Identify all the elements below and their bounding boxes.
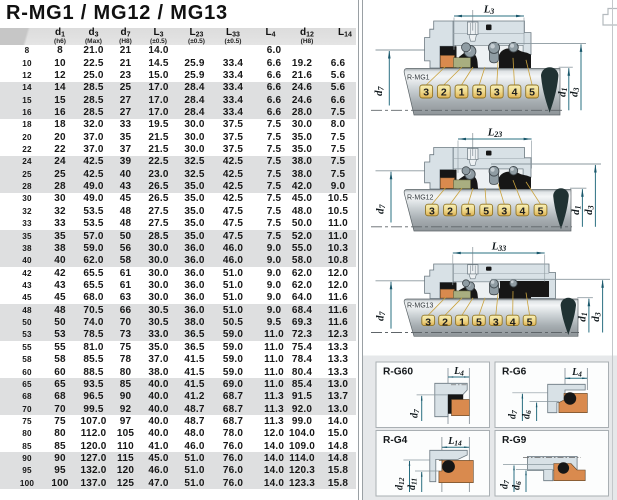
svg-text:4: 4 bbox=[512, 86, 518, 98]
svg-text:d7: d7 bbox=[508, 410, 519, 419]
svg-text:5: 5 bbox=[527, 317, 533, 329]
svg-text:3: 3 bbox=[429, 206, 435, 218]
svg-text:5: 5 bbox=[538, 206, 544, 218]
svg-text:L14: L14 bbox=[447, 436, 462, 447]
svg-text:d6: d6 bbox=[512, 481, 523, 490]
svg-text:d7: d7 bbox=[410, 409, 421, 418]
svg-text:3: 3 bbox=[494, 86, 500, 98]
svg-text:3: 3 bbox=[501, 206, 507, 218]
svg-text:R-G6: R-G6 bbox=[502, 367, 527, 378]
svg-text:3: 3 bbox=[423, 86, 429, 98]
svg-text:d11: d11 bbox=[407, 478, 418, 490]
svg-text:R-MG13: R-MG13 bbox=[407, 303, 434, 310]
svg-text:1: 1 bbox=[459, 86, 465, 98]
svg-text:R-MG1: R-MG1 bbox=[407, 75, 430, 82]
svg-text:L4: L4 bbox=[571, 367, 582, 378]
svg-text:L4: L4 bbox=[453, 366, 464, 377]
svg-text:4: 4 bbox=[519, 206, 525, 218]
svg-text:d12: d12 bbox=[395, 477, 406, 490]
svg-text:5: 5 bbox=[476, 317, 482, 329]
svg-text:1: 1 bbox=[459, 317, 465, 329]
svg-text:5: 5 bbox=[476, 86, 482, 98]
svg-text:5: 5 bbox=[483, 206, 489, 218]
svg-text:d6: d6 bbox=[522, 410, 533, 419]
svg-text:d7: d7 bbox=[500, 480, 511, 489]
svg-text:2: 2 bbox=[442, 317, 448, 329]
svg-text:2: 2 bbox=[447, 206, 453, 218]
svg-text:R-G9: R-G9 bbox=[502, 435, 527, 446]
svg-text:R-MG12: R-MG12 bbox=[407, 194, 434, 201]
svg-text:3: 3 bbox=[425, 317, 431, 329]
svg-text:1: 1 bbox=[465, 206, 471, 218]
svg-text:5: 5 bbox=[529, 86, 535, 98]
svg-text:4: 4 bbox=[510, 317, 516, 329]
svg-text:R-G60: R-G60 bbox=[383, 367, 413, 378]
svg-text:R-G4: R-G4 bbox=[383, 435, 408, 446]
svg-text:2: 2 bbox=[441, 86, 447, 98]
svg-text:3: 3 bbox=[493, 317, 499, 329]
